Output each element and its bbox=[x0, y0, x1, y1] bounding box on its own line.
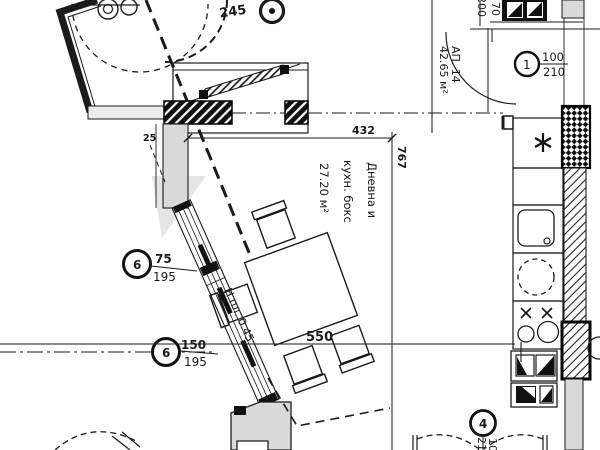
mullion-block bbox=[234, 406, 246, 415]
svg-text:кухн. бокс: кухн. бокс bbox=[341, 160, 355, 223]
wall-gray-block bbox=[562, 0, 584, 18]
column-checkered bbox=[562, 106, 590, 168]
svg-text:210: 210 bbox=[543, 65, 565, 79]
svg-text:200: 200 bbox=[475, 0, 488, 17]
dim-432: 432 bbox=[352, 124, 375, 137]
svg-text:6: 6 bbox=[133, 258, 141, 272]
column-hatched-framed bbox=[562, 322, 590, 379]
svg-text:Дневна и: Дневна и bbox=[365, 162, 379, 218]
svg-text:1: 1 bbox=[523, 58, 531, 72]
dim-550: 550 bbox=[306, 330, 333, 345]
dim-767: 767 bbox=[395, 146, 408, 169]
wall-strip-gray bbox=[565, 379, 583, 450]
wall-block-hatched-right bbox=[285, 101, 308, 124]
svg-text:195: 195 bbox=[153, 270, 176, 284]
wall-hatched bbox=[564, 168, 586, 322]
svg-text:195: 195 bbox=[184, 355, 207, 369]
sash-end-cap bbox=[199, 90, 208, 99]
svg-text:70: 70 bbox=[489, 2, 502, 16]
floor-plan-canvas: 245 25 Н.пл. 0.45 bbox=[0, 0, 600, 450]
svg-text:75: 75 bbox=[155, 252, 172, 266]
wall-block-hatched-left bbox=[164, 101, 232, 124]
svg-text:27.20 м²: 27.20 м² bbox=[317, 163, 331, 213]
svg-text:210: 210 bbox=[475, 437, 488, 450]
svg-text:150: 150 bbox=[181, 338, 206, 352]
svg-text:100: 100 bbox=[542, 50, 564, 64]
sash-end-cap bbox=[280, 65, 289, 74]
wall-strip-gray bbox=[163, 124, 188, 208]
svg-text:6: 6 bbox=[162, 346, 170, 360]
bay-wall-sill bbox=[88, 106, 165, 119]
svg-text:42.65 м²: 42.65 м² bbox=[437, 46, 450, 94]
svg-text:4: 4 bbox=[479, 417, 487, 431]
dim-25: 25 bbox=[143, 133, 156, 144]
